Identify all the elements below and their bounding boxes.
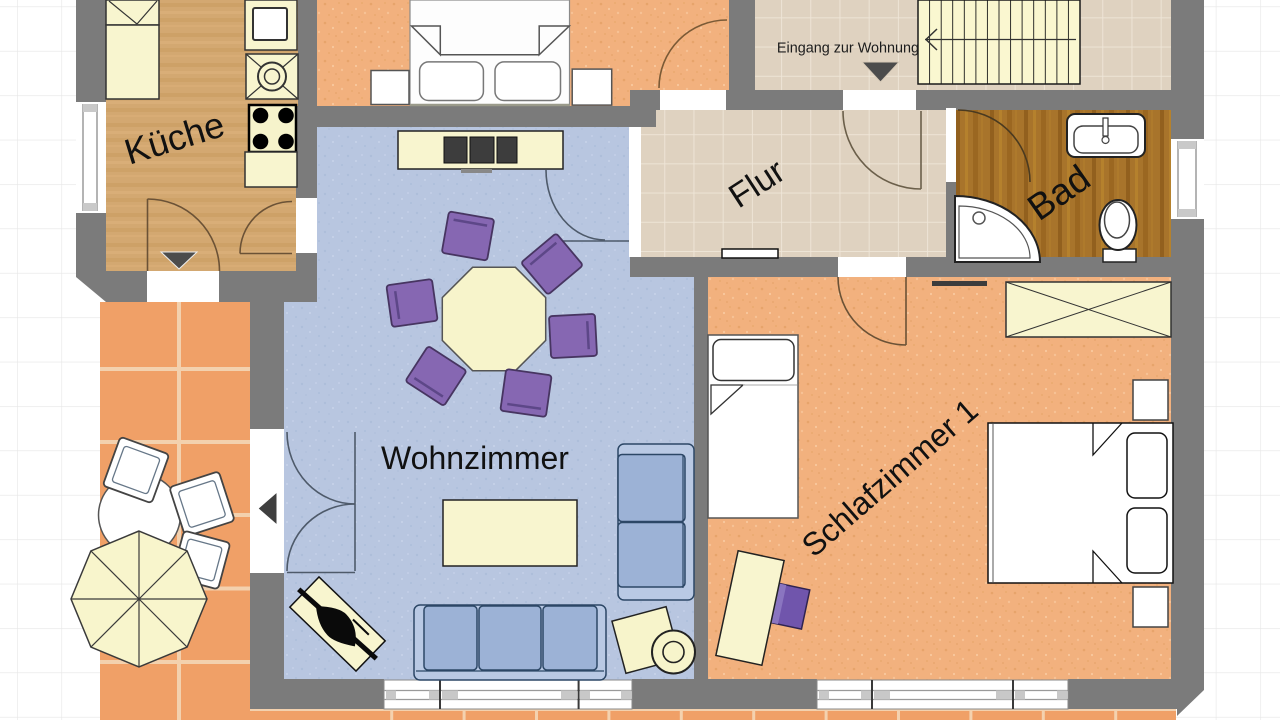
svg-text:Wohnzimmer: Wohnzimmer	[381, 440, 569, 476]
svg-text:Eingang zur Wohnung: Eingang zur Wohnung	[777, 41, 919, 57]
